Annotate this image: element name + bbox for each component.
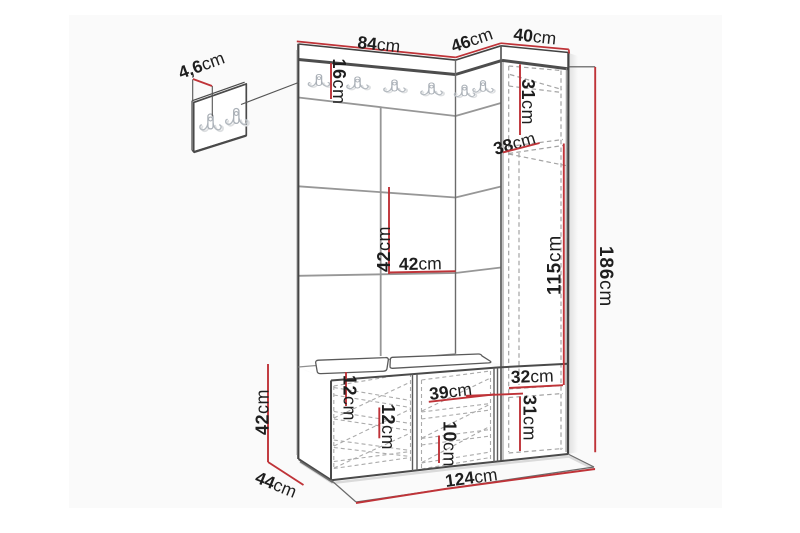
svg-text:12cm: 12cm [378, 404, 398, 450]
svg-text:12cm: 12cm [340, 375, 360, 421]
svg-text:42cm: 42cm [374, 226, 394, 272]
svg-text:16cm: 16cm [329, 59, 349, 105]
svg-text:32cm: 32cm [510, 366, 553, 387]
svg-text:42cm: 42cm [253, 389, 273, 435]
svg-text:10cm: 10cm [440, 421, 460, 467]
svg-text:115cm: 115cm [545, 235, 566, 295]
svg-text:42cm: 42cm [399, 253, 442, 274]
svg-text:31cm: 31cm [518, 79, 538, 125]
svg-text:186cm: 186cm [595, 246, 616, 307]
svg-text:31cm: 31cm [520, 395, 540, 441]
